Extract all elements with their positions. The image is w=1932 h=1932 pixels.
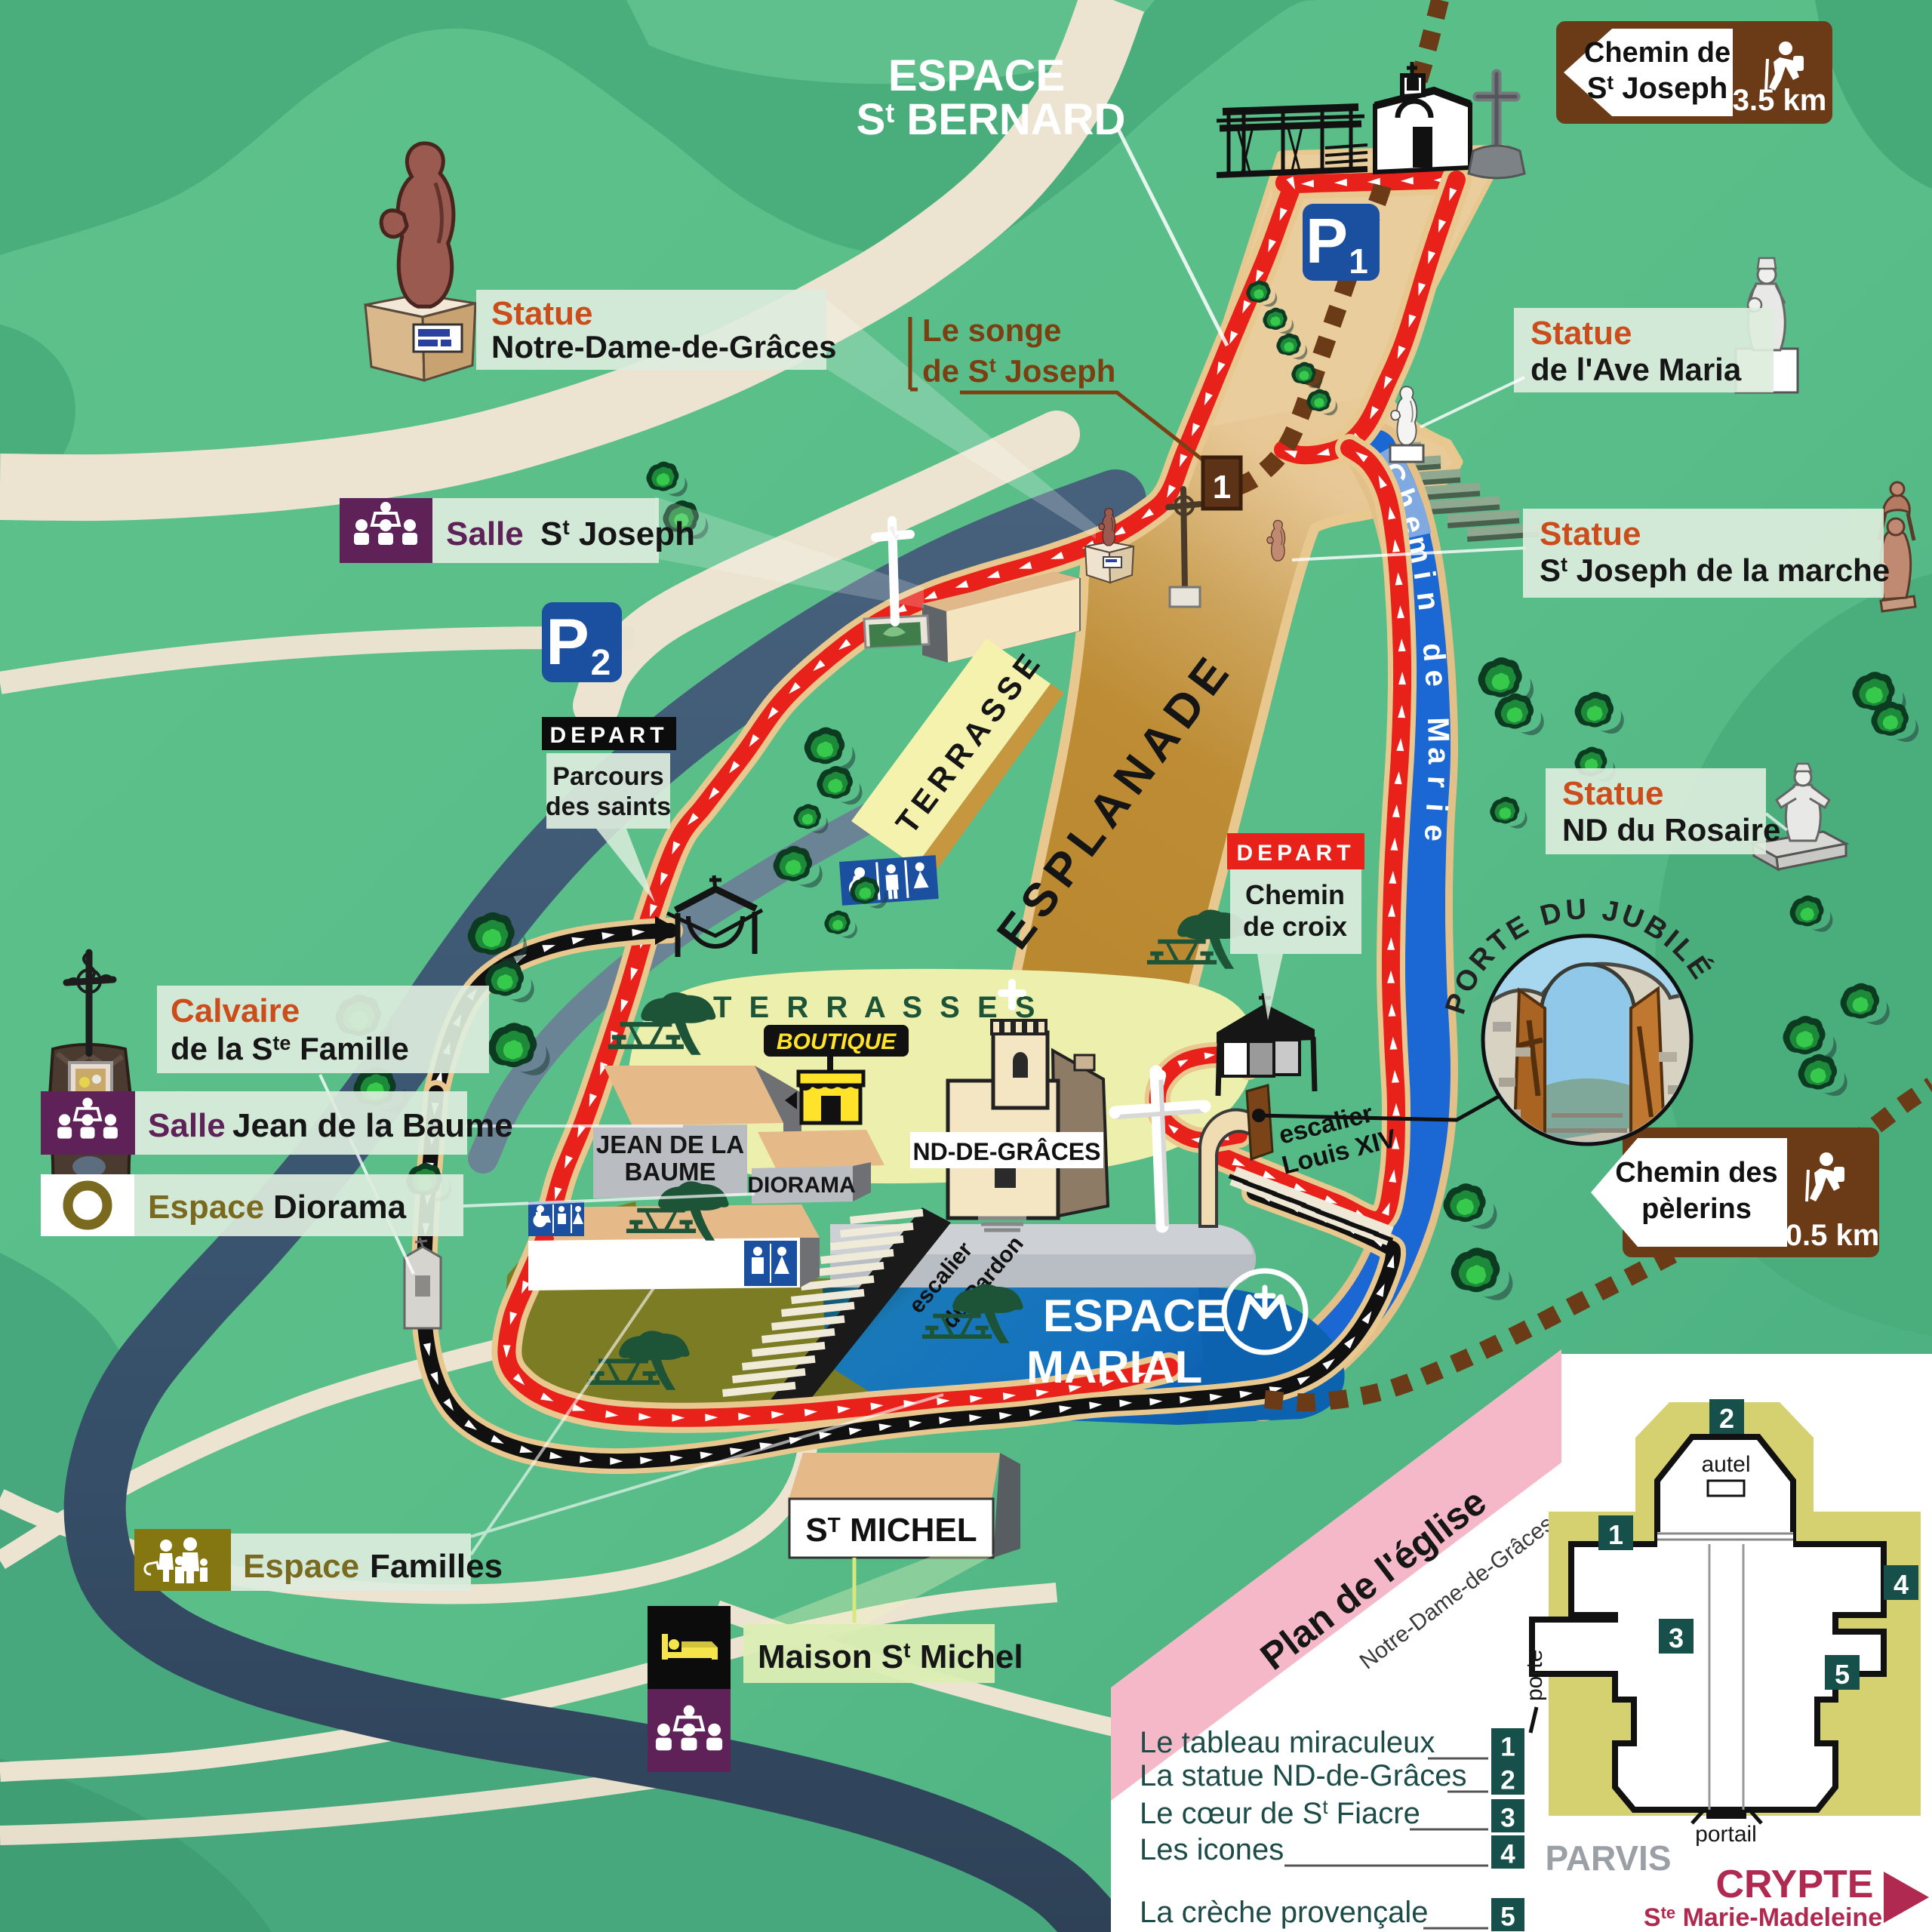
svg-text:Statue: Statue	[1562, 775, 1663, 812]
svg-text:Les icones: Les icones	[1140, 1833, 1284, 1866]
svg-text:Familles: Familles	[370, 1548, 503, 1585]
svg-text:Chemin des: Chemin des	[1615, 1157, 1777, 1189]
svg-text:Chemin de: Chemin de	[1584, 37, 1730, 69]
svg-text:Espace: Espace	[148, 1189, 264, 1226]
svg-text:autel: autel	[1701, 1452, 1750, 1477]
svg-text:La statue ND-de-Grâces: La statue ND-de-Grâces	[1140, 1759, 1467, 1792]
svg-text:MARIAL: MARIAL	[1026, 1342, 1202, 1392]
svg-text:St Joseph de la marche: St Joseph de la marche	[1540, 552, 1890, 588]
svg-text:P: P	[1306, 205, 1348, 276]
svg-text:1: 1	[1500, 1733, 1515, 1762]
svg-text:5: 5	[1835, 1659, 1850, 1690]
svg-text:4: 4	[1894, 1569, 1909, 1600]
svg-text:r: r	[1421, 775, 1455, 788]
svg-text:2: 2	[1719, 1403, 1734, 1434]
svg-text:2: 2	[591, 643, 611, 683]
svg-text:3: 3	[1669, 1623, 1684, 1654]
svg-text:ND du Rosaire: ND du Rosaire	[1562, 812, 1780, 848]
svg-text:DEPART: DEPART	[549, 723, 668, 748]
svg-text:BOUTIQUE: BOUTIQUE	[777, 1029, 897, 1054]
svg-text:e: e	[1418, 824, 1452, 842]
svg-text:P: P	[546, 606, 589, 678]
svg-text:Maison St Michel: Maison St Michel	[758, 1638, 1023, 1675]
svg-text:Diorama: Diorama	[273, 1189, 407, 1226]
svg-text:a: a	[1422, 747, 1455, 764]
svg-text:ESPACE: ESPACE	[888, 51, 1065, 100]
svg-text:porte: porte	[1522, 1650, 1547, 1701]
svg-text:Le tableau miraculeux: Le tableau miraculeux	[1140, 1726, 1435, 1759]
svg-text:Espace: Espace	[243, 1548, 359, 1585]
svg-text:Notre-Dame-de-Grâces: Notre-Dame-de-Grâces	[491, 329, 837, 365]
svg-text:Le songe: Le songe	[922, 312, 1061, 348]
svg-text:JEAN DE LA: JEAN DE LA	[596, 1131, 744, 1158]
svg-text:M: M	[1421, 717, 1455, 743]
svg-text:Parcours: Parcours	[552, 762, 663, 791]
svg-text:Statue: Statue	[1540, 515, 1641, 552]
svg-text:0.5 km: 0.5 km	[1786, 1219, 1880, 1252]
svg-text:5: 5	[1500, 1903, 1515, 1932]
svg-text:BAUME: BAUME	[625, 1158, 716, 1186]
svg-text:1: 1	[1349, 241, 1368, 281]
svg-text:ND-DE-GRÂCES: ND-DE-GRÂCES	[913, 1138, 1101, 1165]
svg-text:Ste Marie-Madeleine: Ste Marie-Madeleine	[1644, 1903, 1882, 1932]
svg-text:pèlerins: pèlerins	[1641, 1193, 1752, 1225]
svg-text:ESPACE: ESPACE	[1043, 1291, 1226, 1341]
svg-text:CRYPTE: CRYPTE	[1716, 1863, 1874, 1906]
svg-text:Salle: Salle	[446, 515, 524, 552]
svg-text:3: 3	[1500, 1804, 1515, 1833]
svg-text:Statue: Statue	[491, 295, 592, 332]
svg-text:e: e	[1418, 669, 1452, 688]
svg-text:de St Joseph: de St Joseph	[922, 353, 1115, 389]
svg-text:d: d	[1416, 641, 1451, 663]
svg-text:portail: portail	[1695, 1822, 1757, 1847]
svg-text:des saints: des saints	[546, 792, 671, 821]
svg-text:Salle: Salle	[148, 1107, 226, 1144]
svg-text:2: 2	[1500, 1766, 1515, 1795]
svg-text:3.5 km: 3.5 km	[1733, 84, 1827, 117]
svg-text:DIORAMA: DIORAMA	[747, 1173, 855, 1198]
svg-text:Calvaire: Calvaire	[171, 992, 300, 1029]
svg-text:Chemin: Chemin	[1245, 879, 1345, 910]
svg-text:La crèche provençale: La crèche provençale	[1140, 1896, 1428, 1929]
svg-text:Statue: Statue	[1531, 315, 1632, 352]
svg-text:DEPART: DEPART	[1236, 841, 1355, 866]
svg-text:1: 1	[1608, 1519, 1623, 1550]
svg-text:de l'Ave Maria: de l'Ave Maria	[1531, 352, 1742, 387]
svg-text:de croix: de croix	[1243, 911, 1347, 942]
svg-text:Jean de la Baume: Jean de la Baume	[232, 1107, 513, 1144]
svg-text:St BERNARD: St BERNARD	[857, 95, 1126, 144]
svg-text:4: 4	[1500, 1840, 1515, 1869]
svg-text:1: 1	[1213, 469, 1231, 506]
svg-text:PARVIS: PARVIS	[1545, 1838, 1671, 1878]
svg-text:Le cœur de St Fiacre: Le cœur de St Fiacre	[1140, 1795, 1420, 1830]
